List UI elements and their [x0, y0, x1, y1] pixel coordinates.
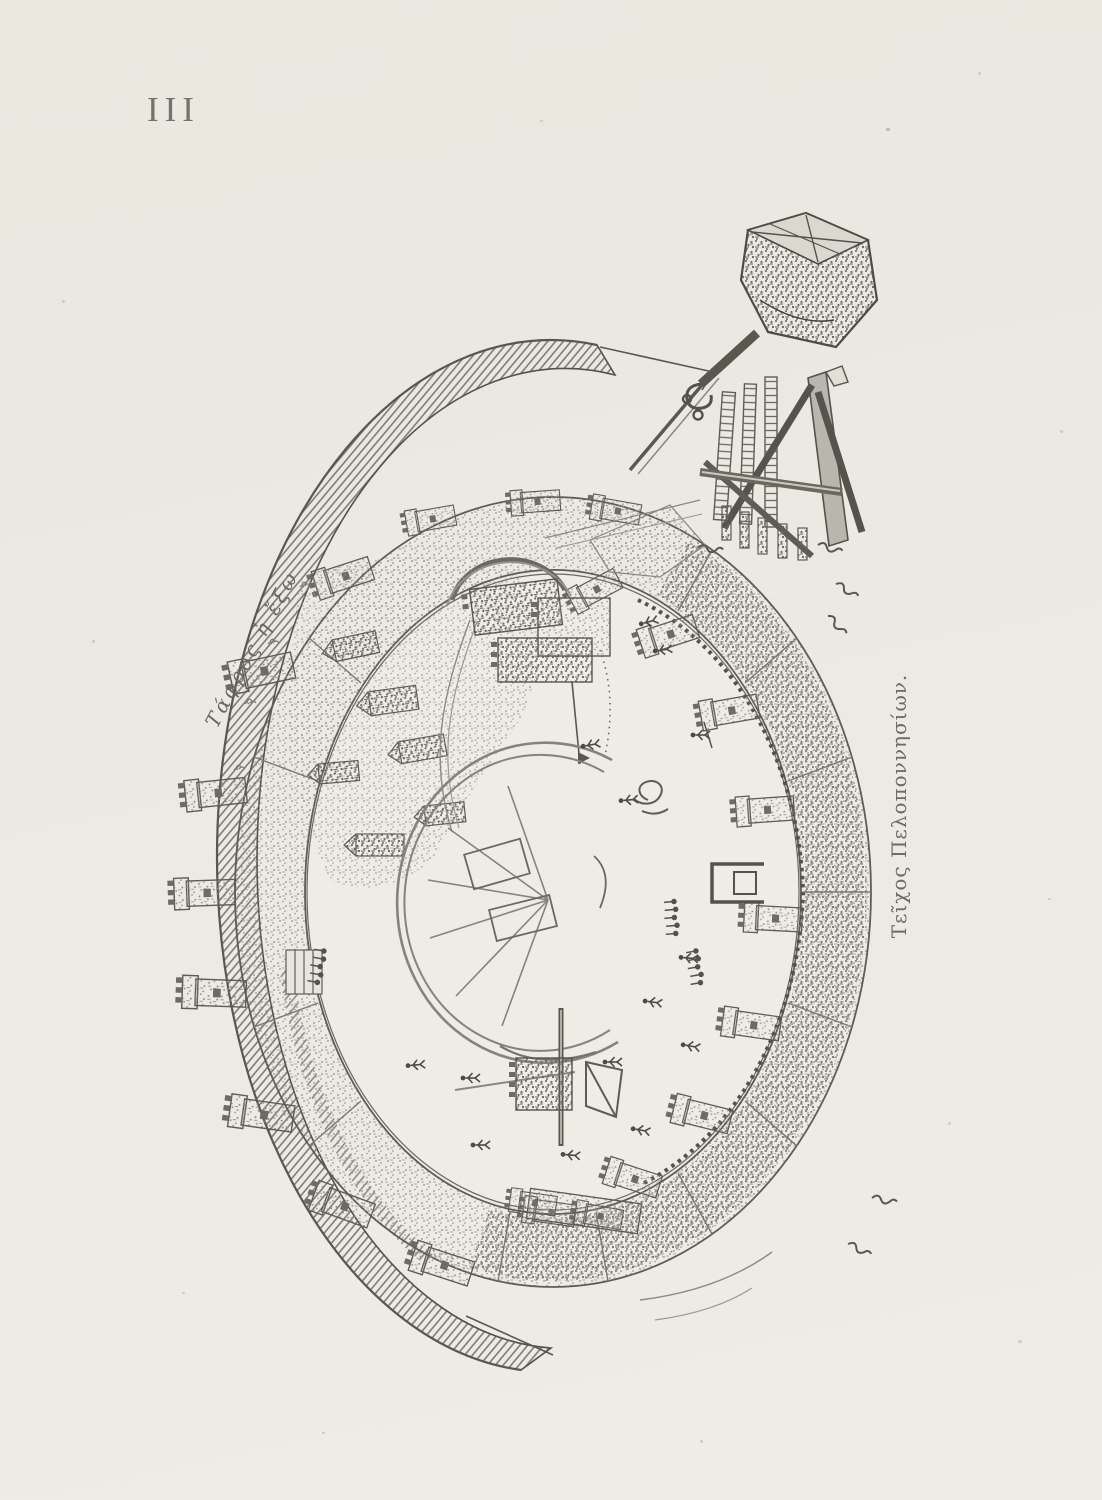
siege-tower-box — [741, 213, 877, 347]
siege-beam — [630, 372, 713, 470]
figure-caption: Τεῖχος Πελοποννησίων. — [887, 674, 911, 939]
siege-frame — [700, 366, 862, 560]
colonnade-building — [286, 950, 322, 994]
book-page: III — [0, 0, 1102, 1500]
engraving-plate: Τάφρος ἡ ἔξω — [0, 0, 1102, 1500]
